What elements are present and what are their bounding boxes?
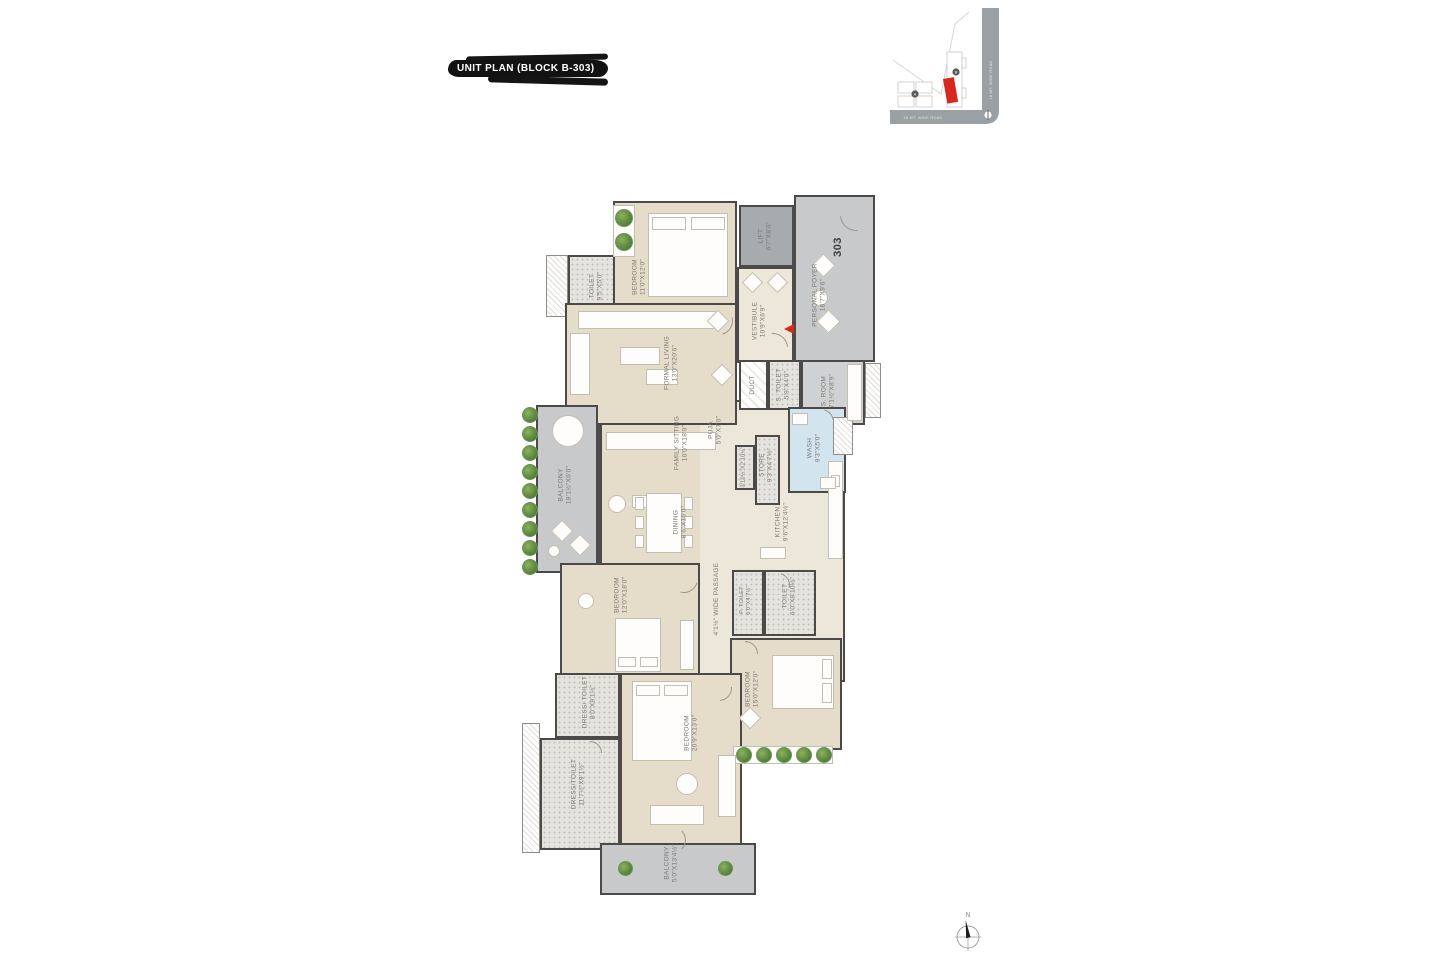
coffee-table [620,347,660,365]
pillow [652,217,686,230]
label-toilet-top: TOILET9'5"X5'0" [589,272,606,301]
road-label-bottom: 18 MT. WIDE ROAD [903,116,942,120]
room-dims: 10'0"X18'0" [682,416,690,470]
room-dims: 9'3"X5'0" [815,434,823,463]
label-balcony-left: BALCONY19'1½"X6'0" [558,466,575,504]
room-dims: 8'6"X16'0" [681,506,689,539]
label-bedroom-master: BEDROOM20'9"X13'0" [684,715,701,751]
road-label-right: 18 MT. WIDE ROAD [989,60,993,99]
pillow [636,685,660,696]
building-b-marker-label: B [955,70,958,75]
ledge-hatch [522,723,540,853]
label-duct: DUCT [749,375,757,394]
floor-plan: TOILET9'5"X5'0" BEDROOM11'0"X12'0" LIFT6… [520,195,875,900]
wash-basin [792,413,808,425]
room-name: FORMAL LIVING [664,336,672,390]
room-dims: 9'6"X12'4½" [783,503,791,541]
room-dims: 5'9"X4'0" [784,368,792,401]
room-name: DUCT [749,375,757,394]
wardrobe [680,620,694,670]
building-a-marker-label: A [914,92,917,97]
label-toilet-2: TOILET6'0"X8'10½" [782,577,799,615]
room-dims: 3'10½"X2'10½" [740,446,747,487]
shrub-icon [522,540,538,556]
room-dims: 5'0"X13'4½" [672,844,680,882]
room-name: BEDROOM [745,671,753,707]
shrub-icon [522,502,538,518]
room-name: BEDROOM [632,259,640,295]
sofa [578,311,718,329]
wash-basin [820,477,836,489]
bed [847,364,862,421]
pillow [640,657,658,667]
label-s-room: S. ROOM7'1½"X8'9" [821,374,838,408]
chair [635,535,644,548]
room-dims: 9'3"X4'7½" [767,448,775,482]
room-dims: 10'9"X6'9" [760,302,768,340]
shrub-icon [522,464,538,480]
room-dims: 8'0"X9'1½" [590,676,598,728]
shrub-icon [522,483,538,499]
label-niche: 3'10½"X2'10½" [740,446,747,487]
page-title-text: UNIT PLAN (BLOCK B-303) [457,63,595,74]
stove [760,547,786,559]
compass: N [946,908,990,956]
room-dims: 12'0"X18'0" [622,577,630,613]
room-dims: 13'0"X20'6" [672,336,680,390]
room-name: VESTIBULE [752,302,760,340]
side-table [548,545,560,557]
armchair [578,593,594,609]
round-table [552,415,584,447]
pillow [618,657,636,667]
room-dims: 18'7"X9'6" [820,263,828,327]
shrub-icon [618,861,633,876]
room-name: FAMILY SITTING [674,416,682,470]
room-dims: 9'5"X5'0" [597,272,605,301]
pillow [822,659,832,679]
shrub-icon [796,747,812,763]
room-name: TOILET [589,272,597,301]
sofa [570,333,590,395]
compass-north-label: N [965,912,970,919]
label-bedroom-top: BEDROOM11'0"X12'0" [632,259,649,295]
label-puja: PUJA5'0"X7'0" [708,416,725,445]
label-family-sitting: FAMILY SITTING10'0"X18'0" [674,416,691,470]
room-name: PERSONAL FOYER [812,263,820,327]
shrub-icon [522,426,538,442]
key-plan-drawing: A B 18 MT. WIDE ROAD 18 MT. WIDE ROAD [885,8,1003,130]
room-dims: 11'0"X12'0" [640,259,648,295]
shrub-icon [522,521,538,537]
room-name: BEDROOM [614,577,622,613]
label-lift: LIFT6'7"X8'0" [758,222,775,251]
shrub-icon [718,861,733,876]
room-dims: 19'1½"X6'0" [566,466,574,504]
shrub-icon [736,747,752,763]
room-dims: 6'7"X8'0" [766,222,774,251]
shrub-icon [522,445,538,461]
label-p-toilet: P. TOILET6'0"X4'7½" [739,585,753,615]
sofa [650,805,704,825]
label-balcony-bottom: BALCONY5'0"X13'4½" [664,844,681,882]
label-s-toilet: S. TOILET5'9"X4'0" [776,368,793,401]
room-name: BEDROOM [684,715,692,751]
room-name: 4'1½" WIDE PASSAGE [713,563,721,636]
room-dims: 15'0"X12'0" [753,671,761,707]
room-name: S. TOILET [776,368,784,401]
entry-arrow-icon [784,324,794,334]
label-dress-toilet-1: DRESS/ TOILET8'0"X9'1½" [582,676,599,728]
sofa [606,432,716,450]
compass-needle-icon [964,920,971,938]
shrub-icon [756,747,772,763]
room-dims: 6'0"X8'10½" [790,577,798,615]
shrub-icon [816,747,832,763]
armchair [608,495,626,513]
unit-number: 303 [832,237,844,257]
shrub-icon [776,747,792,763]
label-bedroom-middle: BEDROOM12'0"X18'0" [614,577,631,613]
label-passage: 4'1½" WIDE PASSAGE [713,563,721,636]
room-dims: 7'1½"X8'9" [829,374,837,408]
label-wash: WASH9'3"X5'0" [807,434,824,463]
pillow [822,683,832,703]
shrub-icon [615,233,633,251]
label-vestibule: VESTIBULE10'9"X6'9" [752,302,769,340]
pillow [691,217,725,230]
cabinet [718,755,736,817]
room-dims: 11'7½"X9'1½" [579,759,587,809]
label-kitchen: KITCHEN9'6"X12'4½" [775,503,792,541]
pillow [664,685,688,696]
chair [635,497,644,510]
label-dress-toilet-2: DRESS/TOILET11'7½"X9'1½" [571,759,588,809]
label-store: STORE9'3"X4'7½" [759,448,776,482]
room-name: PUJA [708,416,716,445]
label-formal-living: FORMAL LIVING13'0"X20'6" [664,336,681,390]
room-dims: 20'9"X13'0" [692,715,700,751]
label-personal-foyer: PERSONAL FOYER18'7"X9'6" [812,263,829,327]
shrub-icon [522,407,538,423]
unit-plan-page: UNIT PLAN (BLOCK B-303) A B 18 MT. WIDE … [0,0,1440,960]
key-plan: A B 18 MT. WIDE ROAD 18 MT. WIDE ROAD [885,8,1003,130]
ledge-hatch [833,417,853,455]
room-dims: 6'0"X4'7½" [746,585,753,615]
shrub-icon [522,559,538,575]
compass-drawing: N [946,908,990,956]
room-dims: 5'0"X7'0" [716,416,724,445]
shrub-icon [615,209,633,227]
chair [635,516,644,529]
room-name: DINING [673,506,681,539]
ledge-hatch [865,363,881,418]
page-title: UNIT PLAN (BLOCK B-303) [448,55,623,87]
room-name: WASH [807,434,815,463]
label-bedroom-right: BEDROOM15'0"X12'0" [745,671,762,707]
room-name: LIFT [758,222,766,251]
round-table [676,773,698,795]
label-dining: DINING8'6"X16'0" [673,506,690,539]
